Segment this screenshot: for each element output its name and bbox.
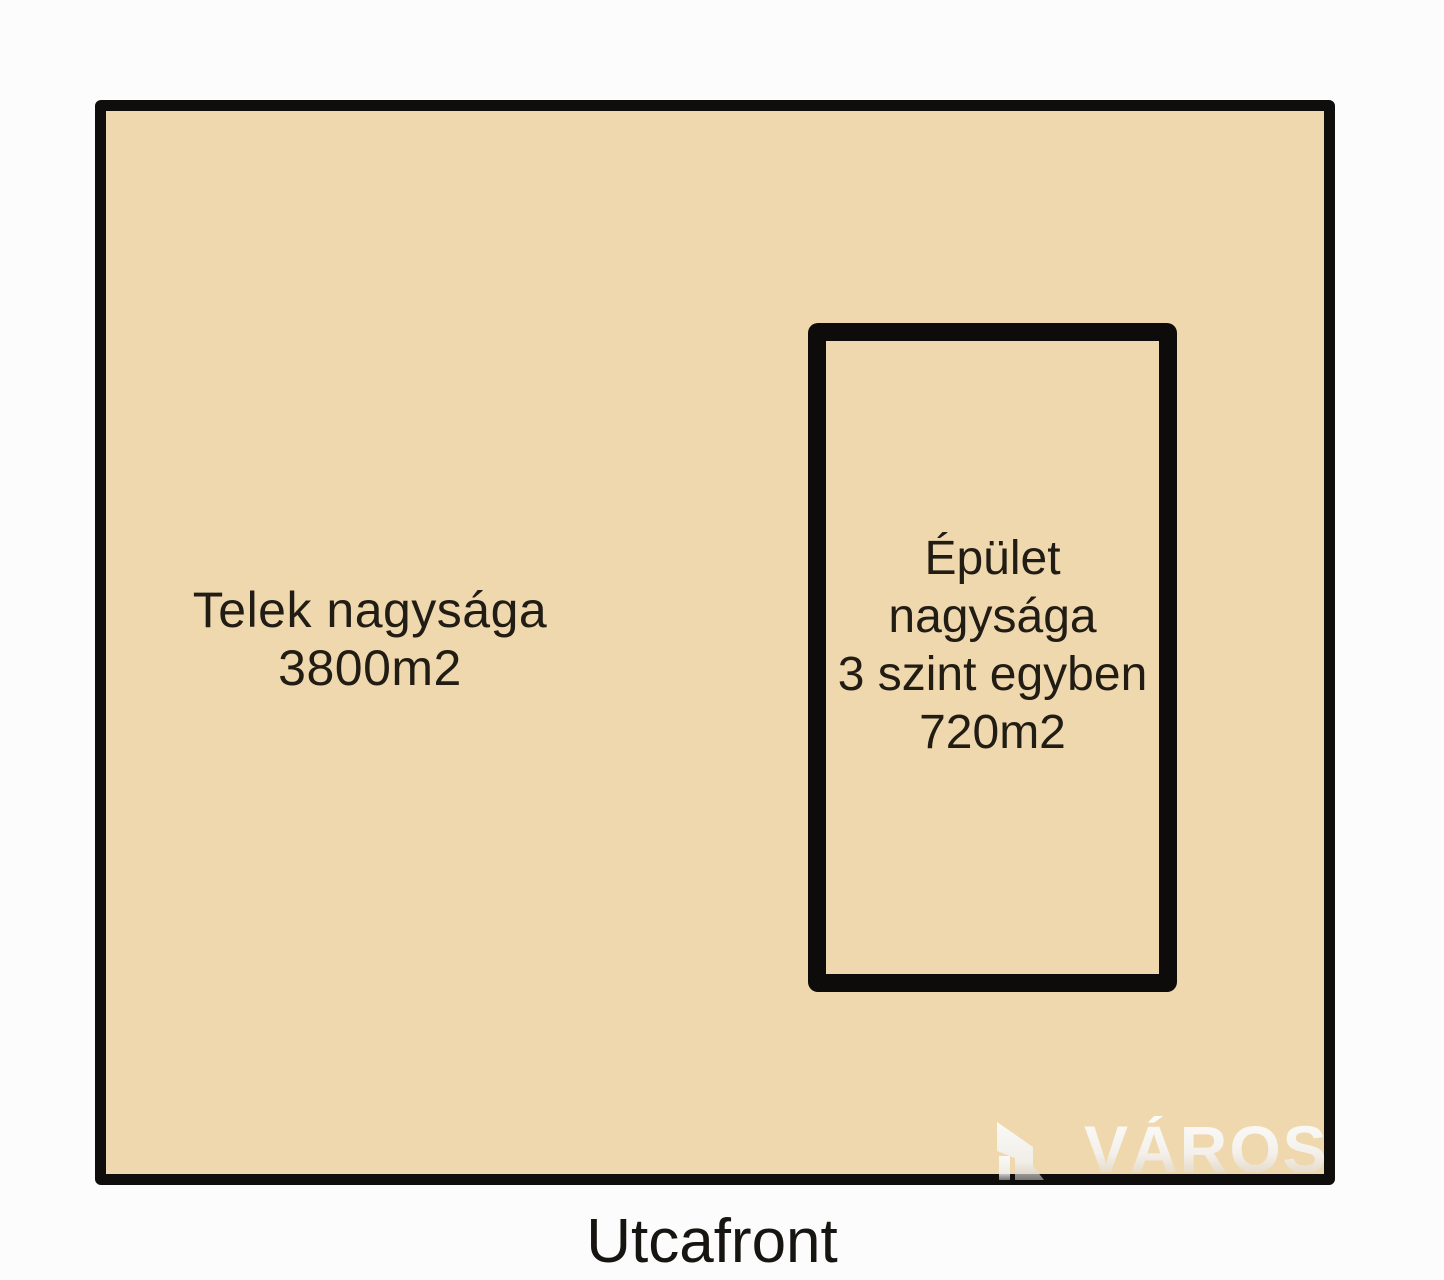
plot-size-label-line1: Telek nagysága	[106, 581, 634, 639]
plot-size-label: Telek nagysága 3800m2	[106, 581, 634, 697]
watermark: VÁROS	[992, 1114, 1329, 1186]
watermark-text: VÁROS	[1084, 1116, 1329, 1182]
building-logo-icon	[992, 1118, 1046, 1186]
plot-size-label-line2: 3800m2	[106, 639, 634, 697]
plot-boundary-rect: Telek nagysága 3800m2 Épület nagysága 3 …	[95, 100, 1335, 1185]
site-plan-canvas: Telek nagysága 3800m2 Épület nagysága 3 …	[0, 0, 1444, 1280]
building-size-label-line3: 3 szint egyben	[838, 646, 1148, 704]
building-size-label-line2: nagysága	[838, 588, 1148, 646]
building-outline-rect: Épület nagysága 3 szint egyben 720m2	[808, 323, 1177, 992]
building-size-label-line4: 720m2	[838, 704, 1148, 762]
building-size-label-line1: Épület	[838, 530, 1148, 588]
street-front-label: Utcafront	[0, 1206, 1424, 1277]
building-size-label: Épület nagysága 3 szint egyben 720m2	[838, 530, 1148, 762]
